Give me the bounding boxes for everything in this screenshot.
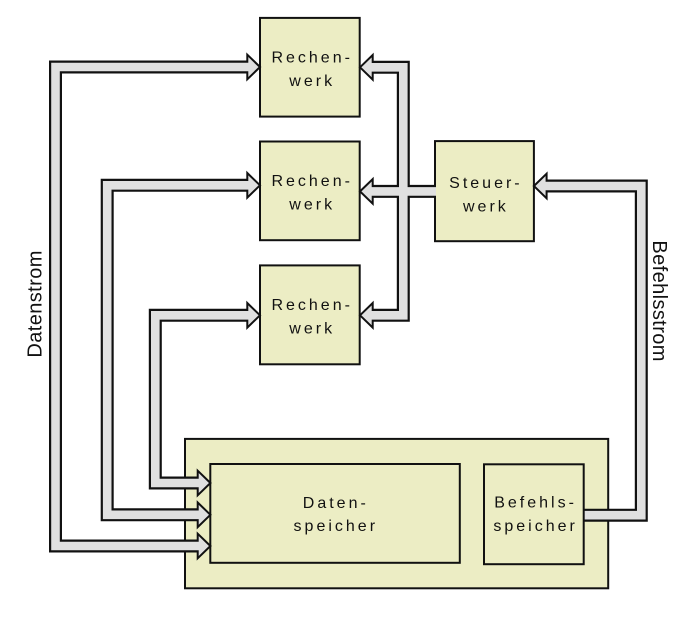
svg-text:Rechen-: Rechen- [271,297,352,314]
svg-text:werk: werk [288,321,335,338]
svg-text:speicher: speicher [493,518,577,535]
svg-text:Rechen-: Rechen- [271,173,352,190]
svg-text:Steuer-: Steuer- [449,175,522,192]
svg-text:Datenstrom: Datenstrom [24,250,46,357]
svg-text:werk: werk [288,73,335,90]
svg-text:Daten-: Daten- [303,495,369,512]
svg-text:Rechen-: Rechen- [271,50,352,67]
svg-text:werk: werk [462,198,509,215]
svg-text:Befehls-: Befehls- [494,495,577,512]
svg-text:Befehlsstrom: Befehlsstrom [648,240,670,362]
svg-text:werk: werk [288,197,335,214]
svg-text:speicher: speicher [294,518,378,535]
